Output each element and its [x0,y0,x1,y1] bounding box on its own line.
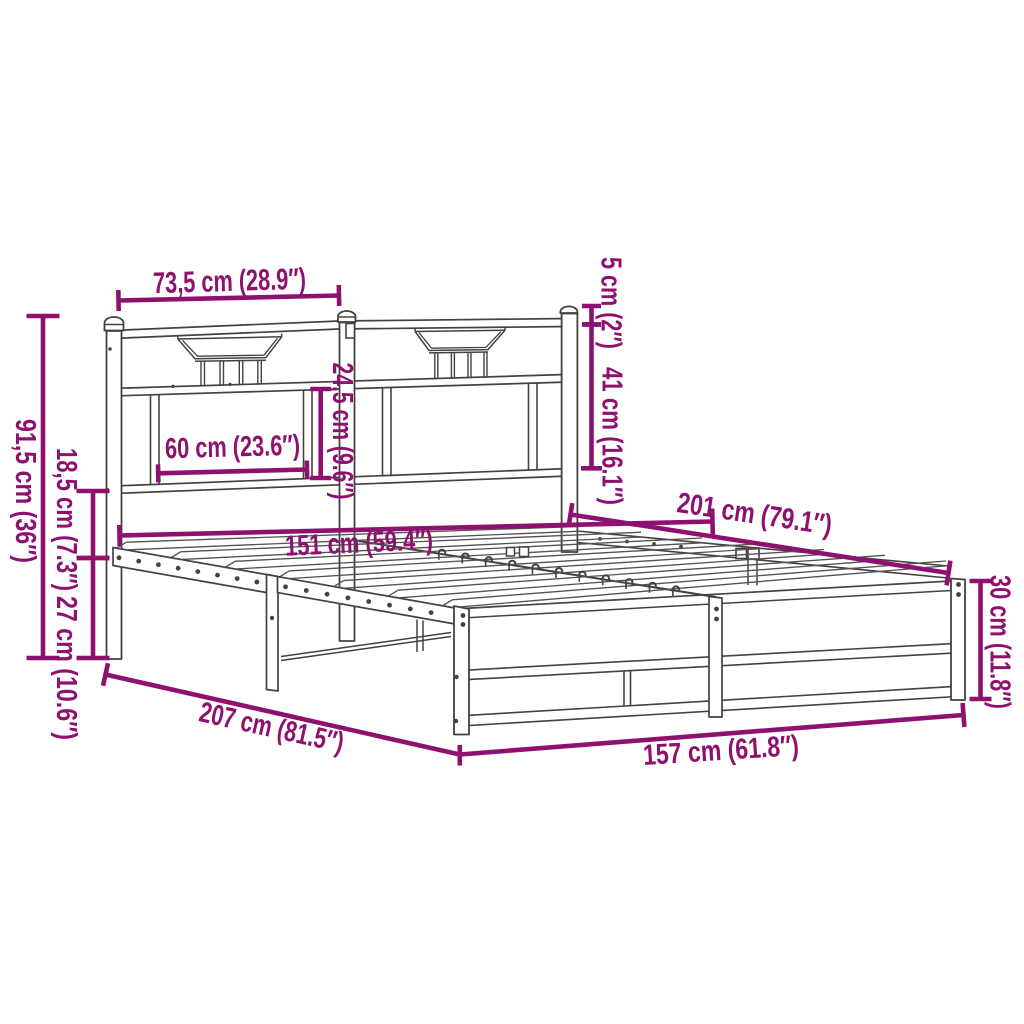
svg-text:41 cm (16.1″): 41 cm (16.1″) [596,367,628,505]
svg-text:18,5 cm (7.3″): 18,5 cm (7.3″) [50,448,82,591]
svg-text:91,5 cm (36″): 91,5 cm (36″) [9,419,41,563]
svg-text:60 cm (23.6″): 60 cm (23.6″) [165,430,301,466]
svg-text:73,5 cm (28.9″): 73,5 cm (28.9″) [153,263,307,301]
svg-text:27 cm (10.6″): 27 cm (10.6″) [50,596,82,740]
svg-text:151 cm (59.4″): 151 cm (59.4″) [284,524,433,562]
svg-text:30 cm (11.8″): 30 cm (11.8″) [984,575,1016,709]
svg-text:5 cm (2″): 5 cm (2″) [595,257,627,349]
svg-text:24,5 cm (9.6″): 24,5 cm (9.6″) [326,363,358,500]
